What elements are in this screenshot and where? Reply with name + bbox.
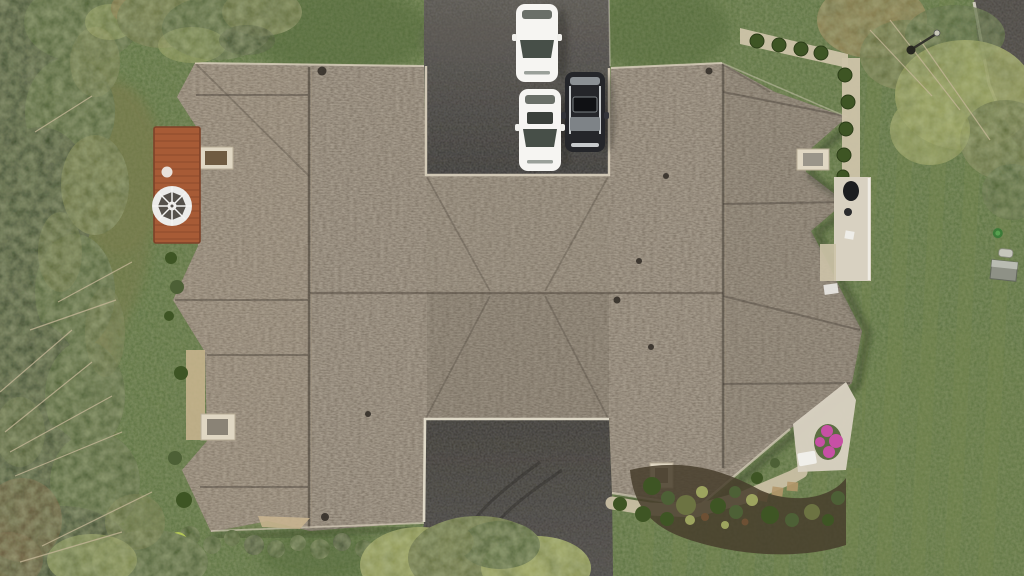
chimney [199, 147, 233, 169]
sunroof [527, 112, 553, 124]
rear-window [525, 95, 555, 104]
roof-white-cap [823, 283, 838, 295]
patio-table [844, 230, 854, 239]
side-mirror [604, 112, 609, 119]
front-grille [527, 160, 553, 164]
side-mirror [515, 124, 520, 131]
patio-umbrella [152, 186, 192, 226]
side-mirror [557, 34, 562, 41]
windshield [523, 129, 557, 147]
side-mirror [512, 34, 517, 41]
wood-deck [154, 127, 200, 243]
aerial-photo [0, 0, 1024, 576]
side-mirror [560, 124, 565, 131]
side-mirror [561, 112, 566, 119]
car-white-sedan-1 [512, 4, 562, 82]
sunroof [573, 97, 597, 112]
windshield [570, 117, 600, 131]
car-dark-suv [561, 72, 609, 152]
bbq-grill [843, 181, 859, 201]
deck-chair [162, 167, 173, 178]
rear-window [570, 77, 600, 85]
planter-pot [844, 208, 852, 216]
front-grille [571, 143, 599, 147]
windshield [520, 40, 554, 58]
utility-cylinder [998, 248, 1013, 257]
rear-window [522, 10, 552, 19]
front-grille [524, 71, 550, 75]
chimney [797, 149, 829, 170]
chimney [201, 414, 235, 440]
car-white-sedan-2 [515, 89, 565, 171]
